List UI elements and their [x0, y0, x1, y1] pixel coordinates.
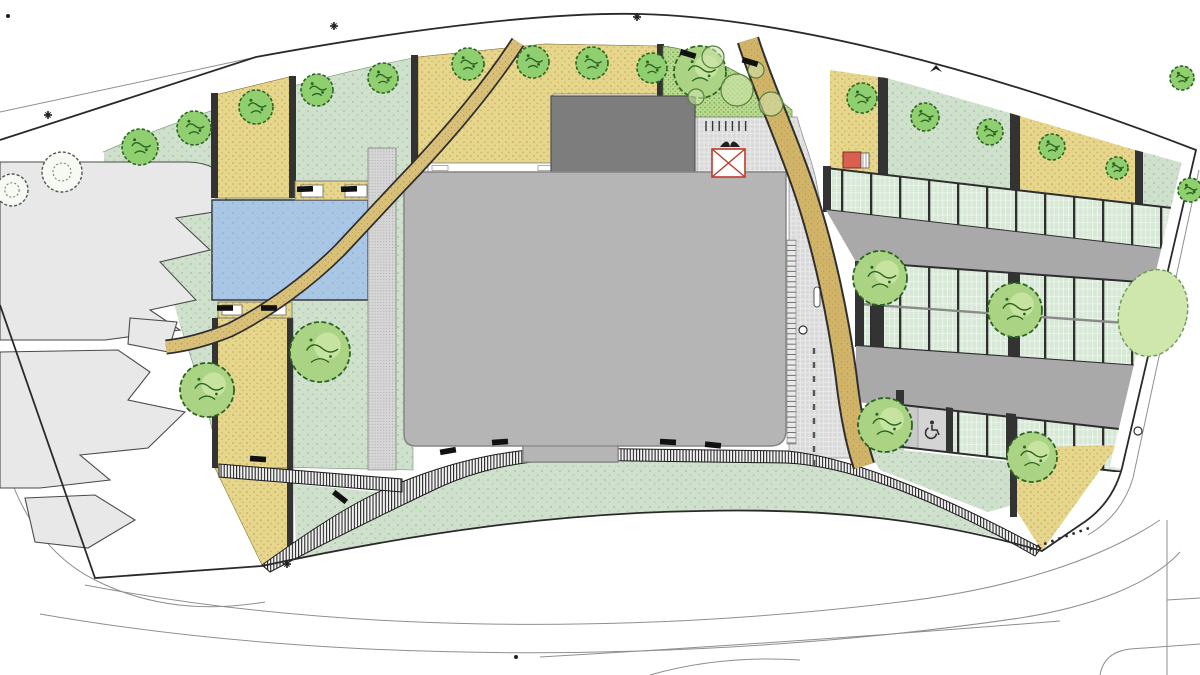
tree-icon	[239, 90, 273, 124]
bench-icon	[440, 447, 457, 455]
survey-cross-icon	[44, 111, 52, 119]
utility-box-icon	[843, 152, 869, 168]
large-tree-icon	[180, 363, 234, 417]
large-tree-icon	[1007, 432, 1057, 482]
tree-icon	[576, 47, 608, 79]
large-tree-icon	[988, 283, 1042, 337]
shrub-icon	[721, 74, 753, 106]
survey-dot-icon	[514, 655, 518, 659]
building-east-ticks	[787, 240, 796, 444]
bike-racks	[706, 121, 746, 131]
survey-dot-icon	[6, 14, 10, 18]
bench-icon	[217, 305, 233, 311]
shrub-icon	[702, 46, 724, 68]
circle-mark-icon	[1134, 427, 1142, 435]
tree-icon	[637, 53, 667, 83]
tree-icon	[517, 46, 549, 78]
tree-icon	[1106, 157, 1128, 179]
bench-icon	[341, 186, 357, 192]
bench-icon	[250, 456, 266, 463]
tree-icon	[911, 103, 939, 131]
bench-icon	[261, 305, 277, 311]
roof-block	[551, 96, 695, 174]
large-tree-icon	[853, 251, 907, 305]
bench-icon	[492, 439, 508, 446]
site-plan-page: Site plan drawing — curved landscaped pl…	[0, 0, 1200, 675]
tree-icon	[177, 111, 211, 145]
tree-icon	[977, 119, 1003, 145]
tree-icon	[1170, 66, 1194, 90]
survey-cross-icon	[330, 22, 338, 30]
site-plan-drawing: Site plan drawing — curved landscaped pl…	[0, 0, 1200, 675]
existing-tree-icon	[0, 174, 28, 206]
north-mark-icon	[930, 65, 942, 72]
tree-icon	[301, 74, 333, 106]
tree-icon	[368, 63, 398, 93]
large-tree-icon	[290, 322, 350, 382]
bench-icon	[660, 439, 676, 445]
shrub-icon	[759, 92, 783, 116]
large-tree-icon	[858, 398, 912, 452]
shrub-icon	[688, 89, 704, 105]
tree-icon	[847, 83, 877, 113]
circle-mark-icon	[799, 326, 807, 334]
tree-icon	[122, 129, 158, 165]
tree-icon	[452, 48, 484, 80]
building	[404, 172, 786, 462]
bench-icon	[297, 186, 313, 192]
north-walkway	[428, 163, 555, 172]
building-south-tab	[523, 446, 618, 462]
existing-tree-icon	[42, 152, 82, 192]
tree-icon	[1039, 134, 1065, 160]
